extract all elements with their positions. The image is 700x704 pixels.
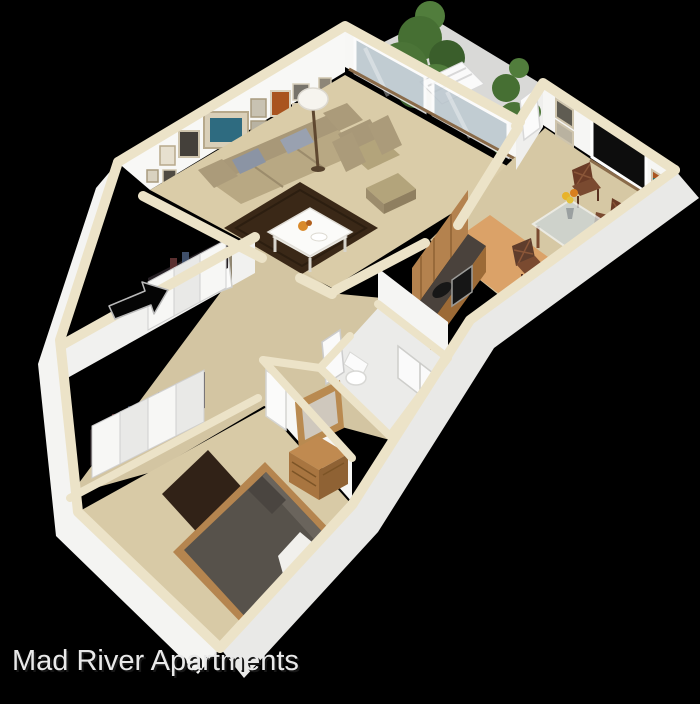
apartment-3d-floor-plan: Mad River Apartments Mad River Apartment…	[0, 0, 700, 704]
property-name-label: Mad River Apartments	[12, 645, 299, 677]
floor-plan-rendering: Mad River Apartments Mad River Apartment…	[0, 0, 700, 704]
